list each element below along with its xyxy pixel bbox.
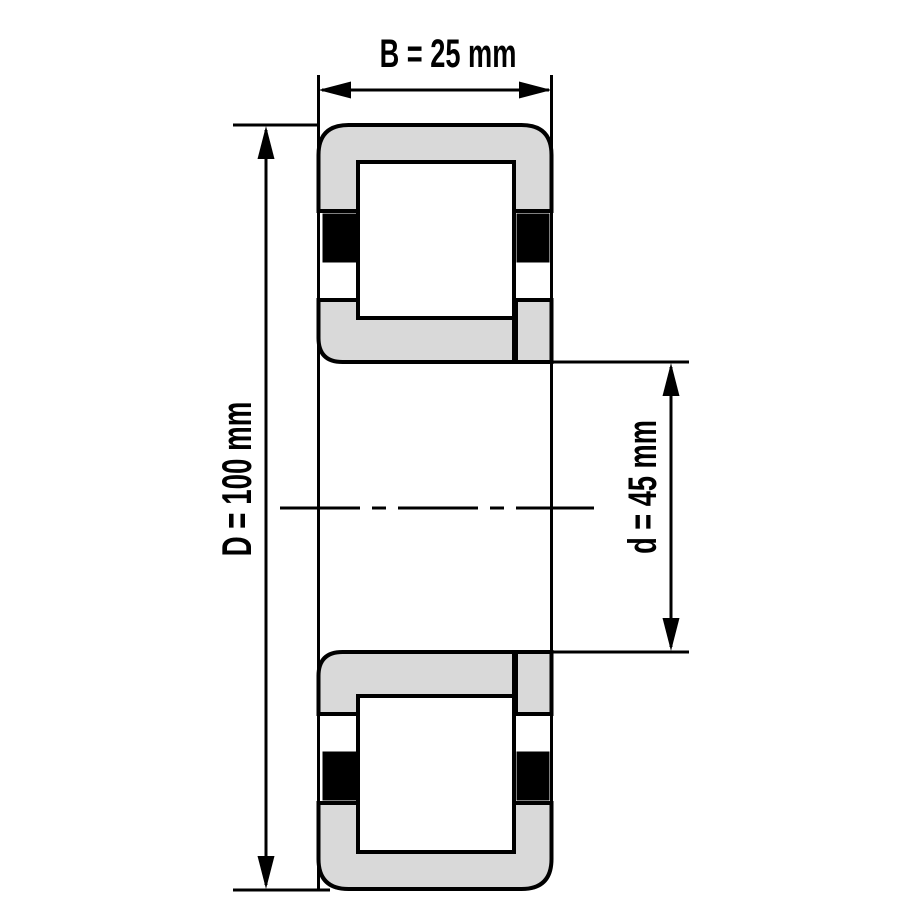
bottom-cage-left <box>323 752 357 801</box>
b-dimension-label: B = 25 mm <box>380 32 517 76</box>
d-bore-dimension-label: d = 45 mm <box>621 420 665 554</box>
bottom-cage-right <box>517 752 550 801</box>
top-cage-left <box>323 214 357 263</box>
bottom-flange-ring <box>516 652 552 714</box>
top-cage-right <box>517 214 550 263</box>
top-roller <box>358 162 514 318</box>
bottom-roller <box>358 696 514 852</box>
d-outer-dimension-label: D = 100 mm <box>213 402 260 557</box>
top-flange-ring <box>516 300 552 362</box>
top-section <box>319 125 552 362</box>
bottom-section <box>319 652 552 889</box>
bearing-cross-section-diagram: B = 25 mm D = 100 mm d = 45 mm <box>0 0 900 900</box>
